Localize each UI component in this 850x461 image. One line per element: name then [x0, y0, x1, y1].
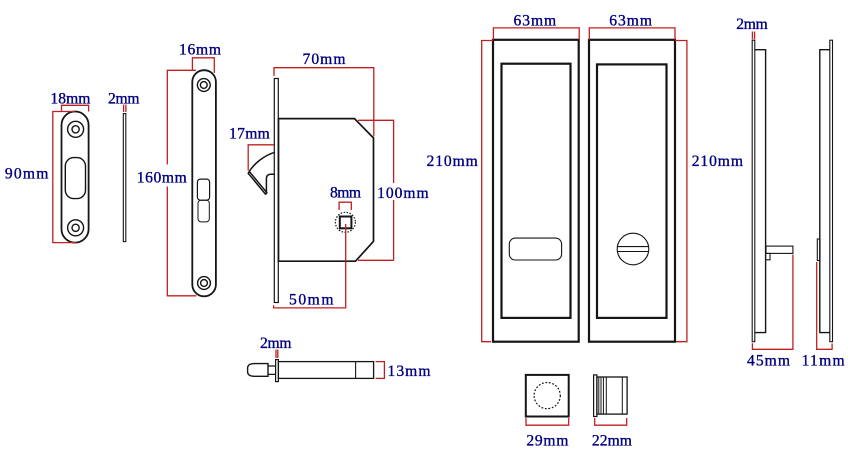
- svg-text:17mm: 17mm: [229, 125, 271, 142]
- svg-text:160mm: 160mm: [137, 170, 188, 187]
- svg-text:2mm: 2mm: [108, 91, 141, 108]
- svg-text:90mm: 90mm: [5, 165, 50, 182]
- svg-text:11mm: 11mm: [802, 352, 846, 369]
- svg-text:2mm: 2mm: [736, 16, 769, 33]
- svg-text:100mm: 100mm: [377, 185, 430, 202]
- svg-text:70mm: 70mm: [303, 51, 347, 68]
- svg-text:63mm: 63mm: [609, 13, 653, 30]
- svg-text:22mm: 22mm: [592, 432, 633, 449]
- svg-text:210mm: 210mm: [692, 153, 744, 170]
- svg-text:63mm: 63mm: [514, 13, 558, 30]
- svg-text:2mm: 2mm: [260, 335, 293, 352]
- svg-text:18mm: 18mm: [50, 91, 91, 108]
- svg-text:210mm: 210mm: [427, 153, 479, 170]
- svg-text:45mm: 45mm: [747, 352, 791, 369]
- svg-text:13mm: 13mm: [388, 363, 432, 380]
- svg-text:50mm: 50mm: [289, 291, 335, 308]
- svg-text:8mm: 8mm: [330, 185, 362, 202]
- svg-text:16mm: 16mm: [179, 41, 222, 58]
- svg-text:29mm: 29mm: [526, 432, 569, 449]
